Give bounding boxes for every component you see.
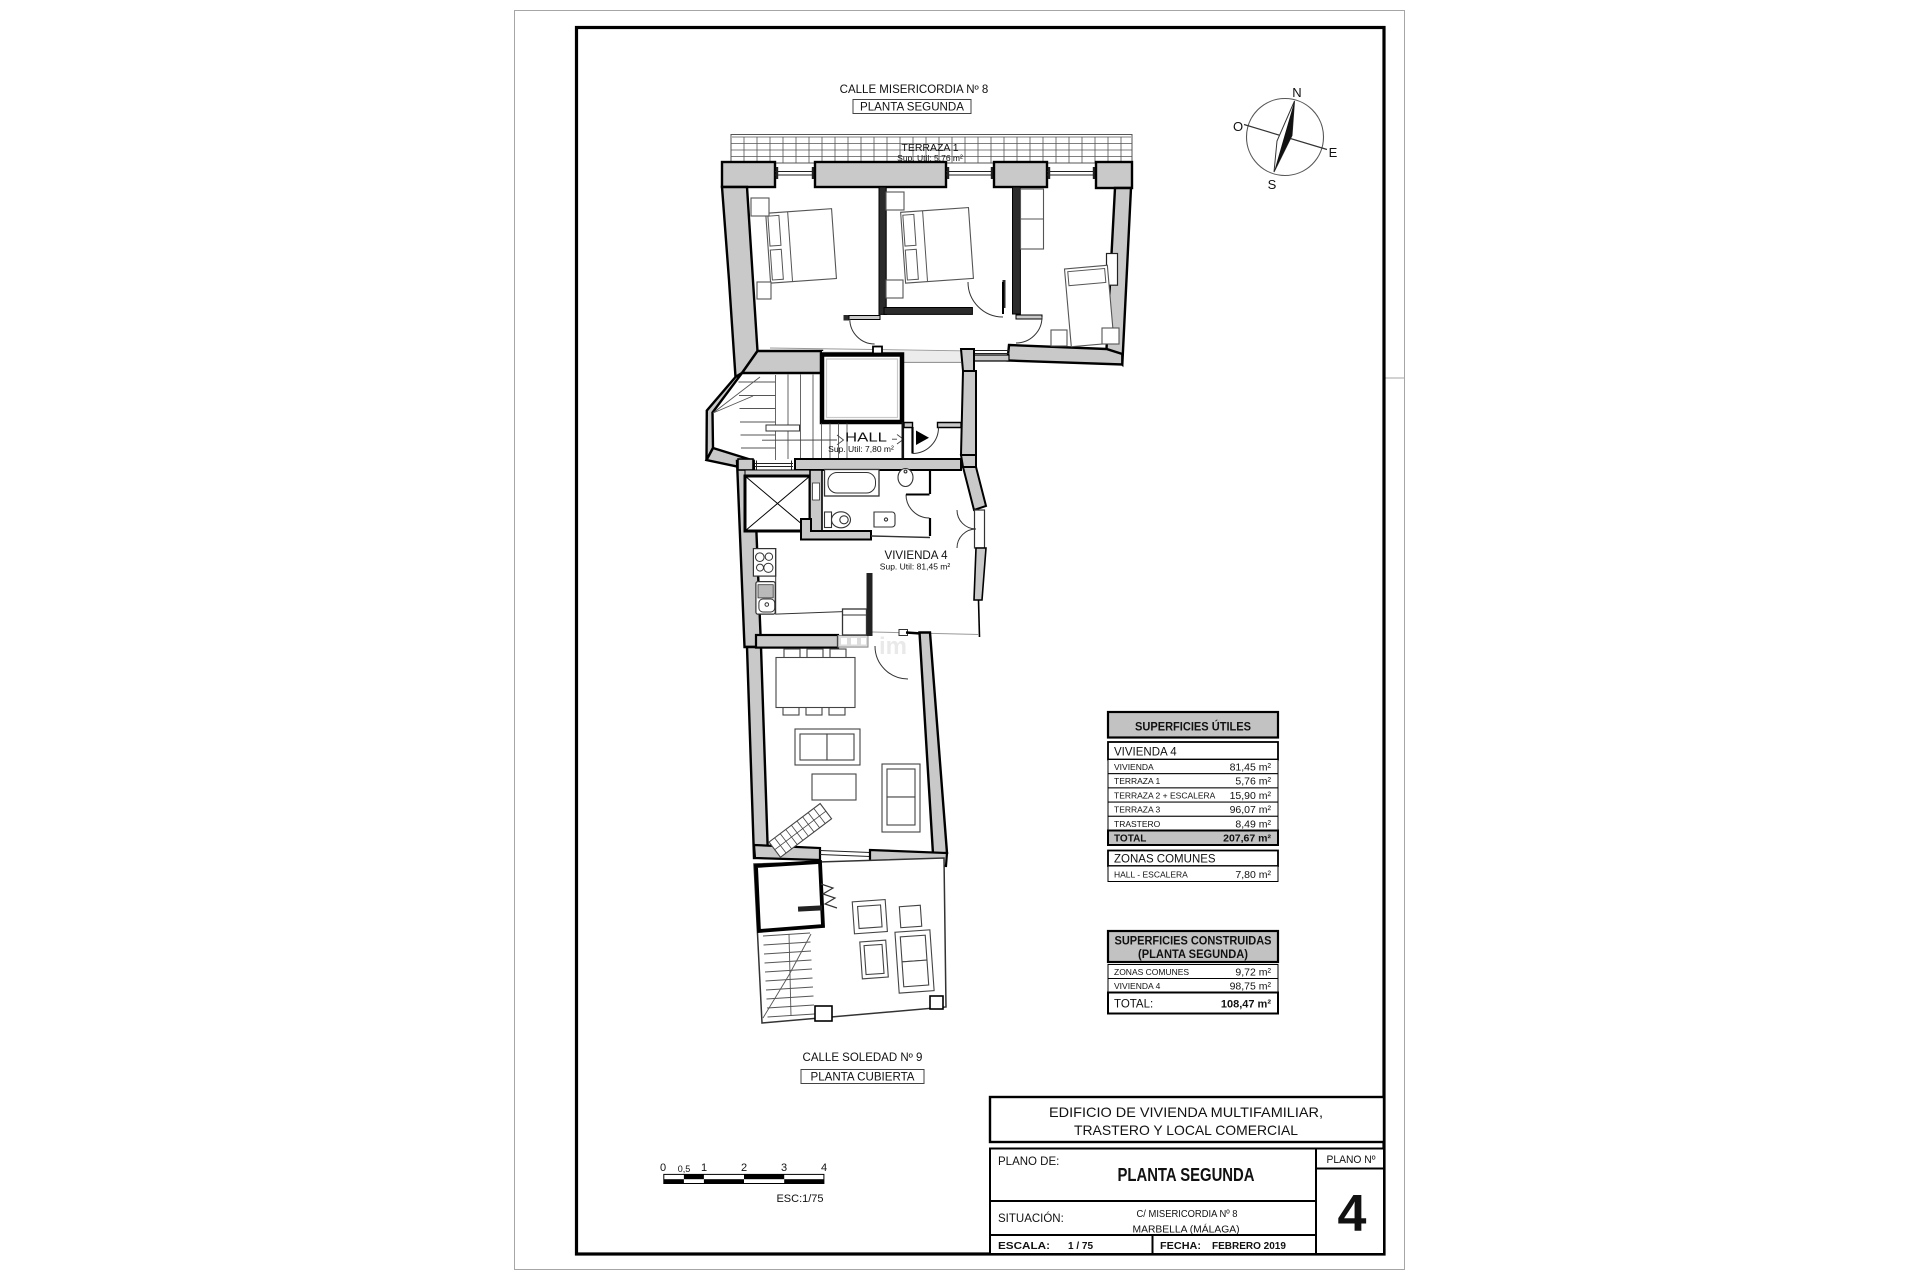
svg-text:1 / 75: 1 / 75: [1068, 1241, 1093, 1252]
svg-text:3: 3: [781, 1162, 787, 1174]
svg-text:108,47 m²: 108,47 m²: [1221, 999, 1271, 1011]
svg-text:VIVIENDA: VIVIENDA: [1114, 762, 1154, 772]
svg-text:VIVIENDA 4: VIVIENDA 4: [1114, 981, 1161, 991]
svg-text:Sup. Util: 81,45 m²: Sup. Util: 81,45 m²: [880, 562, 951, 572]
svg-text:O: O: [1233, 119, 1243, 134]
svg-text:1: 1: [701, 1162, 707, 1174]
svg-text:96,07 m²: 96,07 m²: [1230, 804, 1272, 816]
svg-text:7,80 m²: 7,80 m²: [1235, 869, 1271, 881]
svg-text:8,49 m²: 8,49 m²: [1235, 818, 1271, 830]
svg-text:PLANTA SEGUNDA: PLANTA SEGUNDA: [1118, 1164, 1255, 1185]
svg-text:9,72 m²: 9,72 m²: [1235, 967, 1271, 979]
svg-text:FECHA:: FECHA:: [1160, 1241, 1201, 1252]
svg-text:EDIFICIO DE VIVIENDA MULTIFAMI: EDIFICIO DE VIVIENDA MULTIFAMILIAR,: [1049, 1104, 1323, 1120]
svg-text:(PLANTA SEGUNDA): (PLANTA SEGUNDA): [1138, 947, 1248, 961]
svg-text:207,67 m²: 207,67 m²: [1223, 833, 1271, 845]
svg-text:TOTAL:: TOTAL:: [1114, 999, 1153, 1011]
svg-text:4: 4: [821, 1162, 827, 1174]
svg-text:CALLE MISERICORDIA Nº 8: CALLE MISERICORDIA Nº 8: [840, 84, 989, 96]
svg-text:ZONAS COMUNES: ZONAS COMUNES: [1114, 854, 1216, 866]
svg-text:TERRAZA 2 + ESCALERA: TERRAZA 2 + ESCALERA: [1114, 790, 1216, 800]
svg-text:Sup. Util: 7,80 m²: Sup. Util: 7,80 m²: [828, 444, 894, 454]
svg-text:SUPERFICIES ÚTILES: SUPERFICIES ÚTILES: [1135, 719, 1251, 734]
svg-text:15,90 m²: 15,90 m²: [1230, 790, 1272, 802]
svg-text:im: im: [879, 633, 907, 660]
svg-text:PLANO DE:: PLANO DE:: [998, 1156, 1059, 1168]
svg-text:MARBELLA (MÁLAGA): MARBELLA (MÁLAGA): [1133, 1223, 1240, 1236]
svg-text:98,75 m²: 98,75 m²: [1230, 981, 1272, 993]
svg-text:ZONAS COMUNES: ZONAS COMUNES: [1114, 967, 1189, 977]
svg-text:TERRAZA 1: TERRAZA 1: [1114, 776, 1161, 786]
svg-text:HALL - ESCALERA: HALL - ESCALERA: [1114, 870, 1188, 880]
svg-text:N: N: [1292, 85, 1301, 100]
svg-text:PLANTA SEGUNDA: PLANTA SEGUNDA: [860, 102, 964, 114]
svg-text:SUPERFICIES CONSTRUIDAS: SUPERFICIES CONSTRUIDAS: [1115, 934, 1272, 948]
svg-text:VIVIENDA 4: VIVIENDA 4: [885, 550, 949, 562]
svg-text:5,76 m²: 5,76 m²: [1235, 776, 1271, 788]
svg-text:FEBRERO 2019: FEBRERO 2019: [1212, 1241, 1286, 1252]
svg-text:PLANTA CUBIERTA: PLANTA CUBIERTA: [811, 1072, 915, 1084]
svg-text:C/ MISERICORDIA Nº 8: C/ MISERICORDIA Nº 8: [1137, 1208, 1238, 1220]
svg-text:0,5: 0,5: [678, 1164, 691, 1174]
svg-text:ESCALA:: ESCALA:: [998, 1241, 1050, 1252]
svg-text:VIVIENDA 4: VIVIENDA 4: [1114, 747, 1177, 759]
svg-text:81,45 m²: 81,45 m²: [1230, 762, 1272, 774]
svg-text:TERRAZA 3: TERRAZA 3: [1114, 805, 1161, 815]
svg-text:0: 0: [660, 1162, 666, 1174]
svg-text:E: E: [1329, 145, 1338, 160]
svg-text:4: 4: [1338, 1185, 1367, 1243]
svg-text:2: 2: [741, 1162, 747, 1174]
svg-text:HALL: HALL: [845, 430, 887, 445]
svg-text:ESC:1/75: ESC:1/75: [776, 1193, 823, 1205]
svg-text:TOTAL: TOTAL: [1114, 834, 1146, 845]
svg-text:PLANO Nº: PLANO Nº: [1327, 1154, 1376, 1166]
svg-text:TRASTERO: TRASTERO: [1114, 819, 1161, 829]
svg-text:S: S: [1268, 177, 1277, 192]
svg-text:CALLE SOLEDAD Nº 9: CALLE SOLEDAD Nº 9: [803, 1052, 923, 1064]
svg-text:SITUACIÓN:: SITUACIÓN:: [998, 1212, 1064, 1225]
svg-text:TRASTERO Y LOCAL COMERCIAL: TRASTERO Y LOCAL COMERCIAL: [1074, 1122, 1298, 1138]
